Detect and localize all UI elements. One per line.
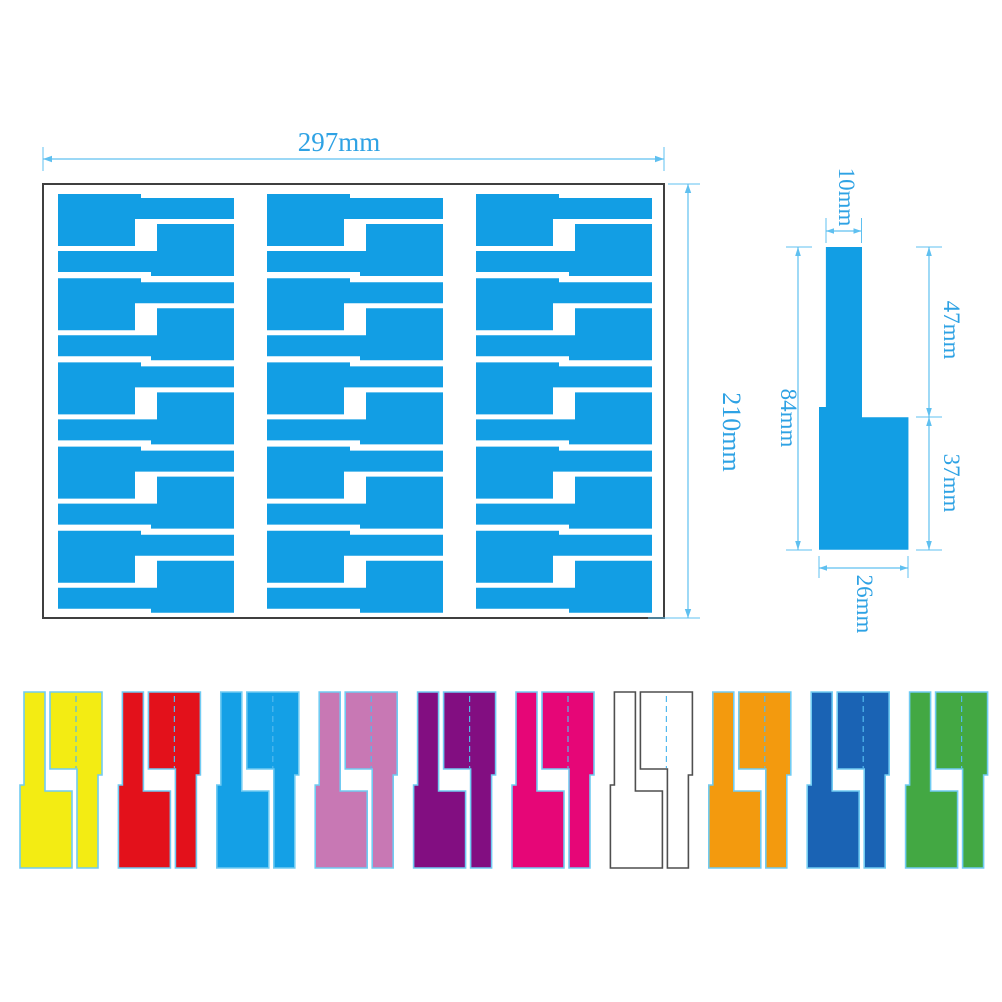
dim-flag-width: 26mm bbox=[819, 556, 908, 633]
dim-sheet-width: 297mm bbox=[43, 127, 664, 171]
color-variant-tile-white bbox=[610, 692, 692, 868]
label-pair-royal-blue bbox=[807, 692, 889, 868]
flag-length-label: 37mm bbox=[939, 454, 964, 513]
color-variant-tile-royal-blue bbox=[807, 692, 889, 868]
color-variant-tile-orange bbox=[709, 692, 791, 868]
single-label-shape bbox=[819, 247, 908, 550]
sheet-diagram bbox=[43, 184, 664, 618]
label-pair-orchid-pink bbox=[315, 692, 397, 868]
arrow-down-icon bbox=[685, 609, 691, 618]
arrow-left-icon bbox=[826, 228, 834, 233]
sheet-width-label: 297mm bbox=[298, 127, 381, 157]
cable-label-diagram: 297mm 210mm 10mm 84mm bbox=[0, 0, 1002, 1002]
color-variant-tile-orchid-pink bbox=[315, 692, 397, 868]
dim-stem-length: 47mm bbox=[916, 247, 964, 417]
diagram-canvas: 297mm 210mm 10mm 84mm bbox=[0, 0, 1002, 1002]
label-pair-red bbox=[118, 692, 200, 868]
label-pair-green bbox=[906, 692, 988, 868]
sheet-height-label: 210mm bbox=[717, 392, 746, 471]
dim-total-length: 84mm bbox=[776, 247, 812, 550]
stem-length-label: 47mm bbox=[939, 301, 964, 360]
total-length-label: 84mm bbox=[776, 389, 801, 448]
color-variants-row bbox=[20, 692, 988, 868]
arrow-right-icon bbox=[655, 156, 664, 162]
arrow-left-icon bbox=[819, 565, 827, 570]
arrow-left-icon bbox=[43, 156, 52, 162]
arrow-up-icon bbox=[795, 247, 801, 256]
label-pair-orange bbox=[709, 692, 791, 868]
label-pair-purple bbox=[414, 692, 496, 868]
arrow-down-icon bbox=[926, 541, 932, 550]
color-variant-tile-yellow bbox=[20, 692, 102, 868]
label-detail-diagram: 10mm 84mm 47mm 37mm bbox=[776, 168, 964, 634]
arrow-down-icon bbox=[795, 541, 801, 550]
stem-width-label: 10mm bbox=[834, 168, 859, 227]
flag-width-label: 26mm bbox=[852, 575, 877, 634]
dim-flag-length: 37mm bbox=[916, 417, 964, 550]
arrow-up-icon bbox=[926, 247, 932, 256]
arrow-down-icon bbox=[926, 408, 932, 417]
arrow-up-icon bbox=[685, 184, 691, 193]
color-variant-tile-red bbox=[118, 692, 200, 868]
color-variant-tile-purple bbox=[414, 692, 496, 868]
label-pair-white bbox=[610, 692, 692, 868]
color-variant-tile-rose-magenta bbox=[512, 692, 594, 868]
dim-stem-width: 10mm bbox=[826, 168, 862, 243]
label-pair-sky-blue bbox=[217, 692, 299, 868]
label-pair-yellow bbox=[20, 692, 102, 868]
arrow-up-icon bbox=[926, 417, 932, 426]
color-variant-tile-green bbox=[906, 692, 988, 868]
label-pair-rose-magenta bbox=[512, 692, 594, 868]
color-variant-tile-sky-blue bbox=[217, 692, 299, 868]
arrow-right-icon bbox=[854, 228, 862, 233]
arrow-right-icon bbox=[900, 565, 908, 570]
